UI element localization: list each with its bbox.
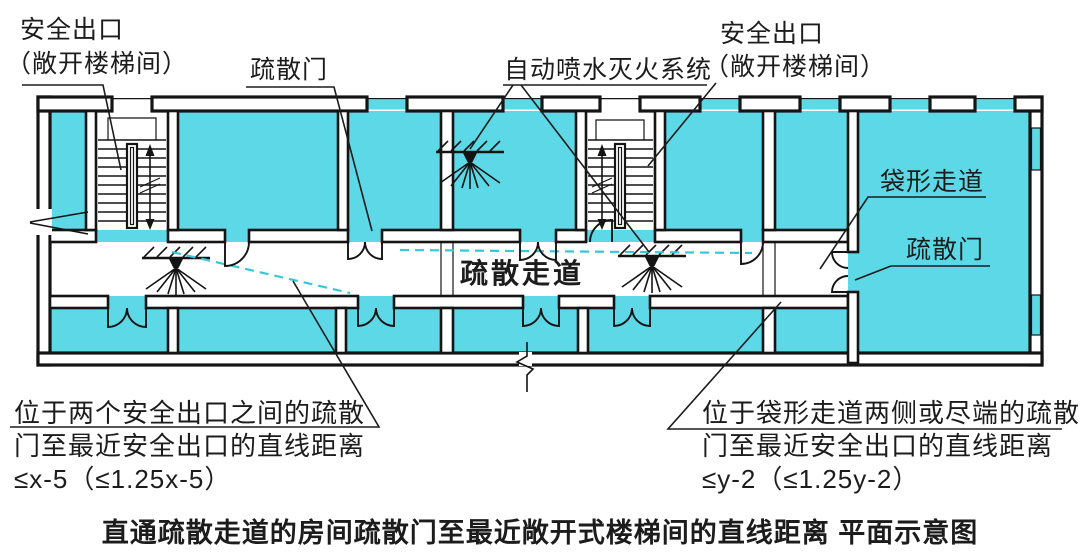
label-dead-end-corridor: 袋形走道 [880, 168, 984, 196]
note-between-exits-line1: 位于两个安全出口之间的疏散 [14, 398, 365, 428]
label-evac-corridor: 疏散走道 [460, 257, 584, 289]
note-dead-end-line2: 门至最近安全出口的直线距离 [702, 431, 1053, 461]
fire-evacuation-plan-figure: 安全出口 （敞开楼梯间） 疏散门 自动喷水灭火系统 安全出口 （敞开楼梯间） 袋… [0, 0, 1080, 554]
window-right-lower [1032, 295, 1041, 335]
corridor-bottom-wall [50, 296, 848, 308]
figure-caption: 直通疏散走道的房间疏散门至最近敞开式楼梯间的直线距离 平面示意图 [102, 517, 979, 548]
note-dead-end-line1: 位于袋形走道两侧或尽端的疏散 [702, 398, 1080, 428]
floor-plan-canvas: 安全出口 （敞开楼梯间） 疏散门 自动喷水灭火系统 安全出口 （敞开楼梯间） 袋… [0, 0, 1080, 554]
corridor-end-wall [848, 111, 858, 363]
label-sprinkler-system: 自动喷水灭火系统 [504, 56, 712, 84]
corridor-top-wall [50, 230, 848, 242]
building-plan [30, 97, 1042, 392]
label-safety-exit-left-line2: （敞开楼梯间） [6, 50, 188, 78]
note-between-exits-line2: 门至最近安全出口的直线距离 [14, 431, 365, 461]
label-evac-door-right: 疏散门 [906, 236, 984, 264]
label-safety-exit-right-line1: 安全出口 [720, 20, 824, 48]
label-safety-exit-left-line1: 安全出口 [20, 16, 124, 44]
label-evac-door-top: 疏散门 [250, 56, 328, 84]
note-between-exits-line3: ≤x-5（≤1.25x-5） [14, 464, 231, 494]
exterior-wall-bottom [38, 353, 1042, 365]
label-safety-exit-right-line2: （敞开楼梯间） [704, 53, 886, 81]
note-dead-end-line3: ≤y-2（≤1.25y-2） [702, 464, 919, 494]
window-right-upper [1032, 128, 1041, 170]
